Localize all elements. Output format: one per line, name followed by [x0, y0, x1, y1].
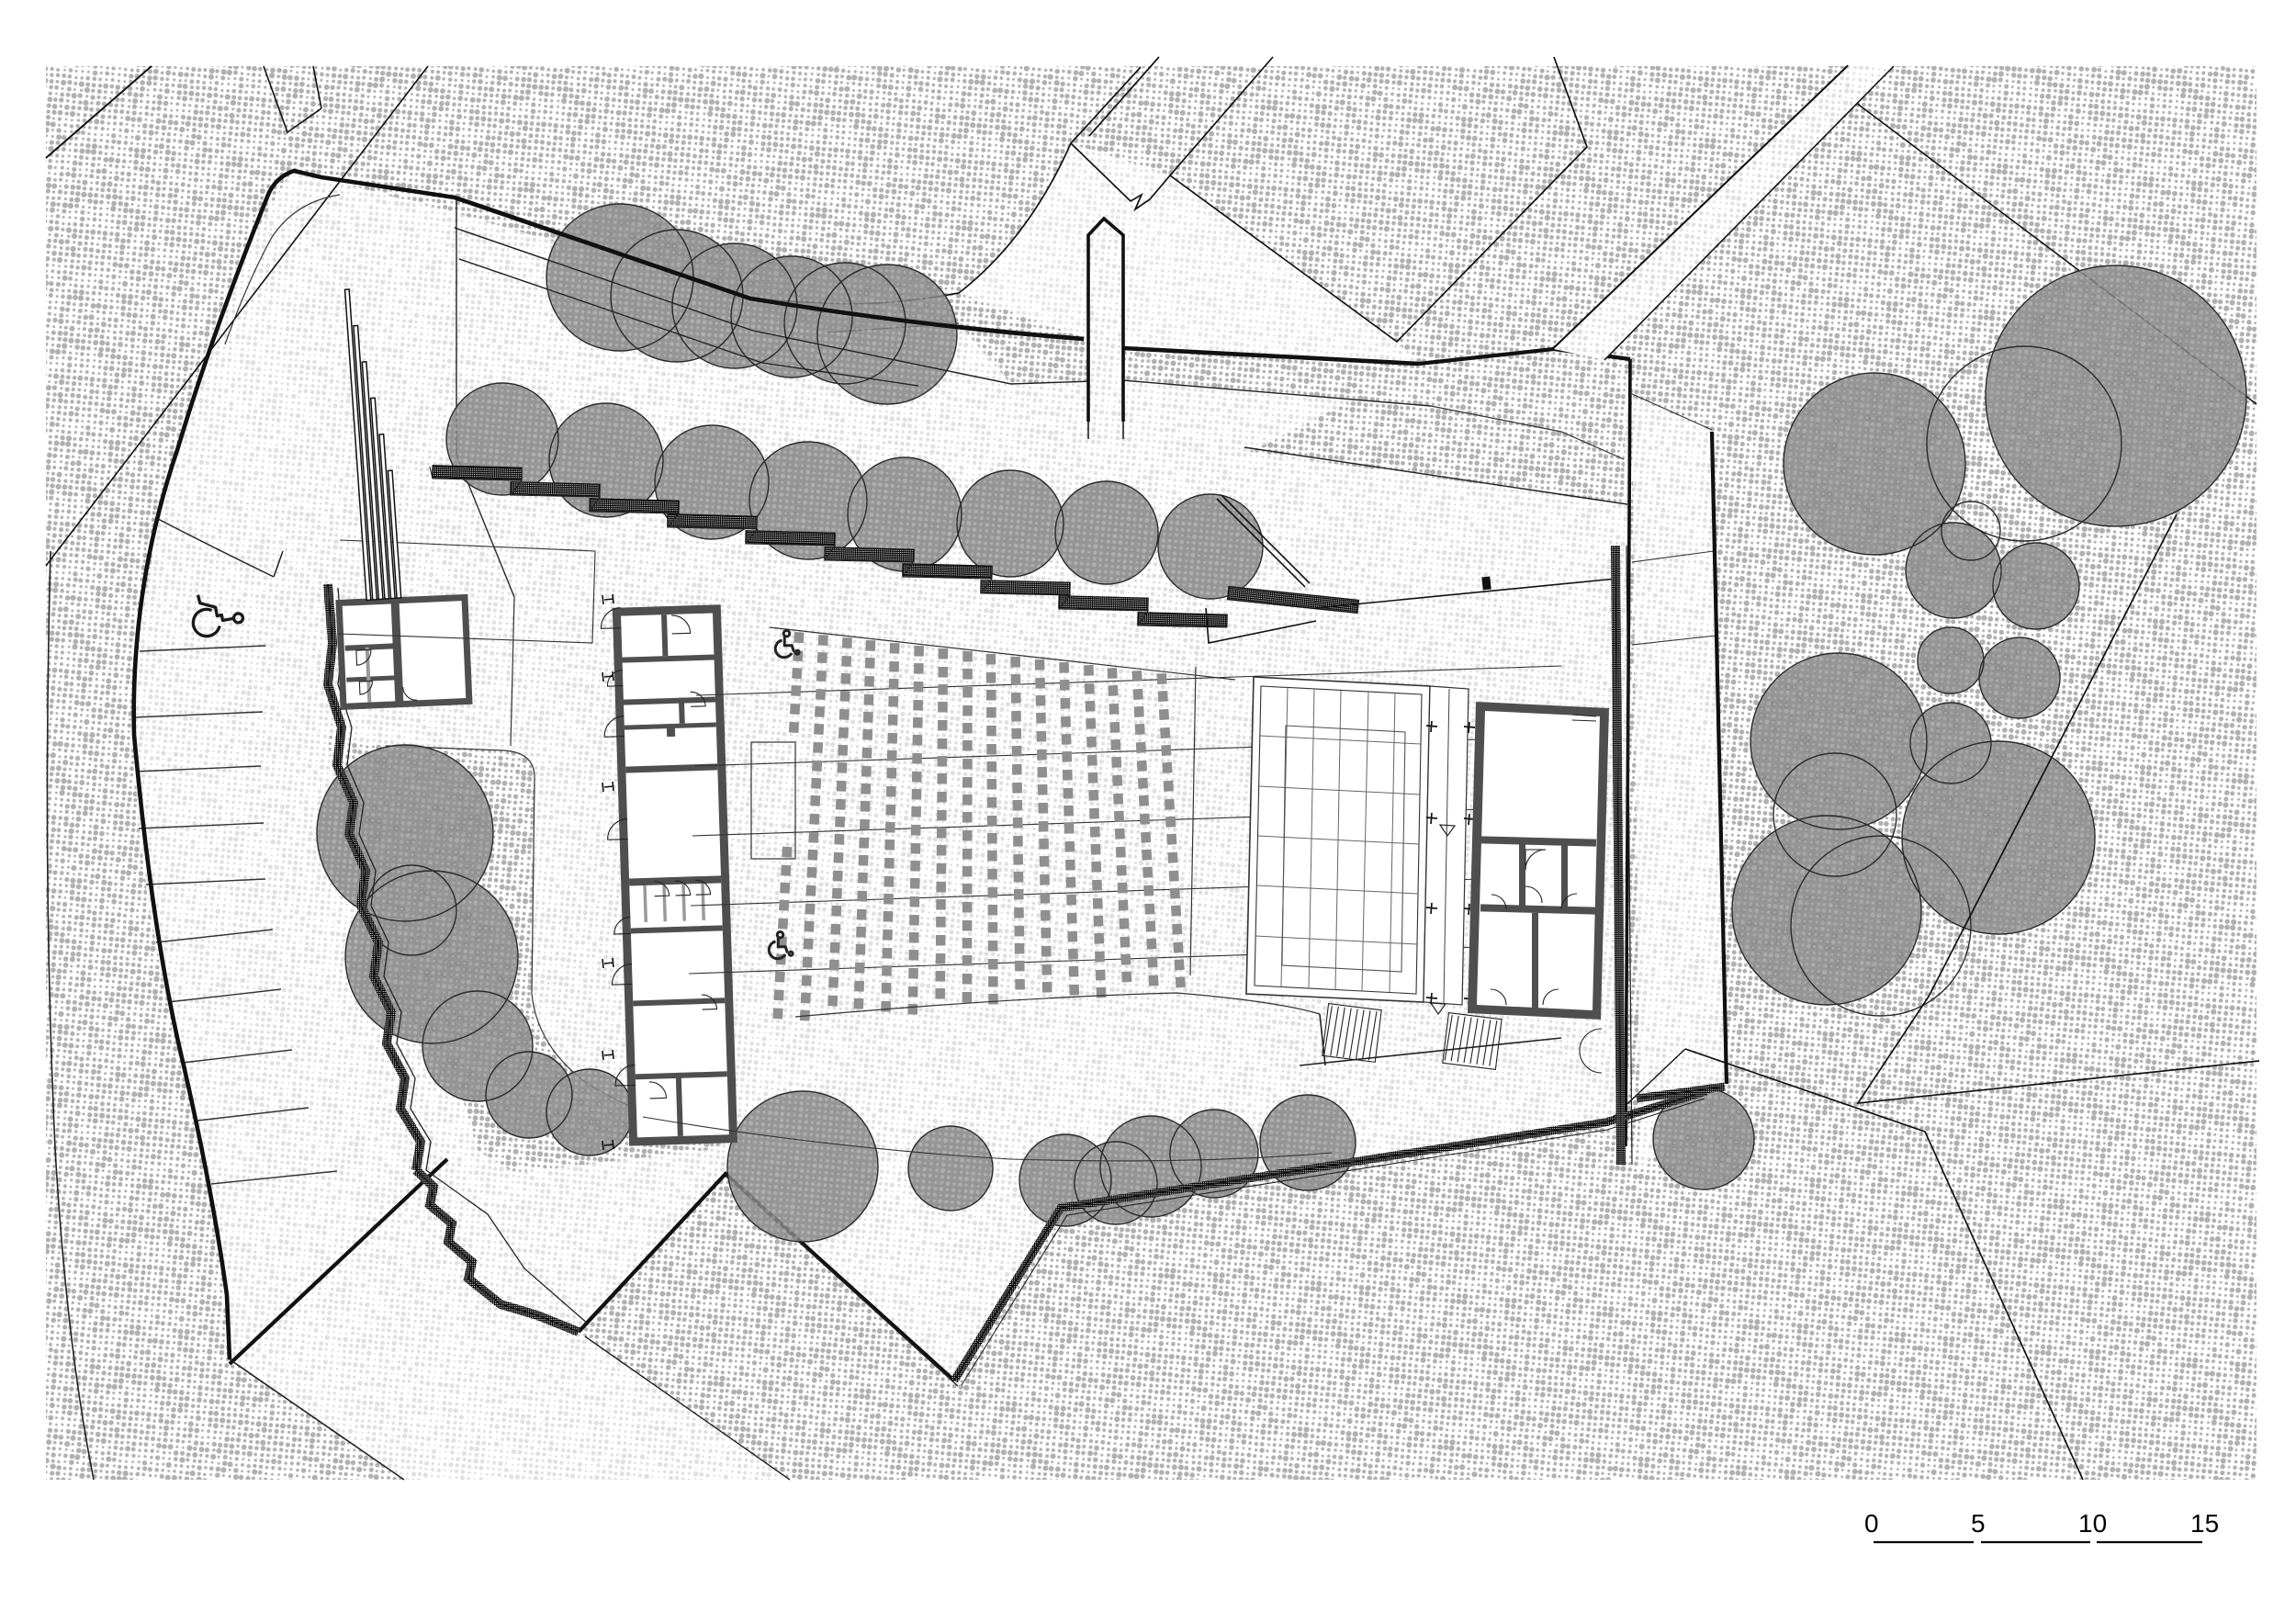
svg-text:10: 10 — [2078, 1509, 2107, 1538]
svg-text:5: 5 — [1971, 1509, 1986, 1538]
svg-text:0: 0 — [1864, 1509, 1879, 1538]
svg-text:15: 15 — [2190, 1509, 2219, 1538]
